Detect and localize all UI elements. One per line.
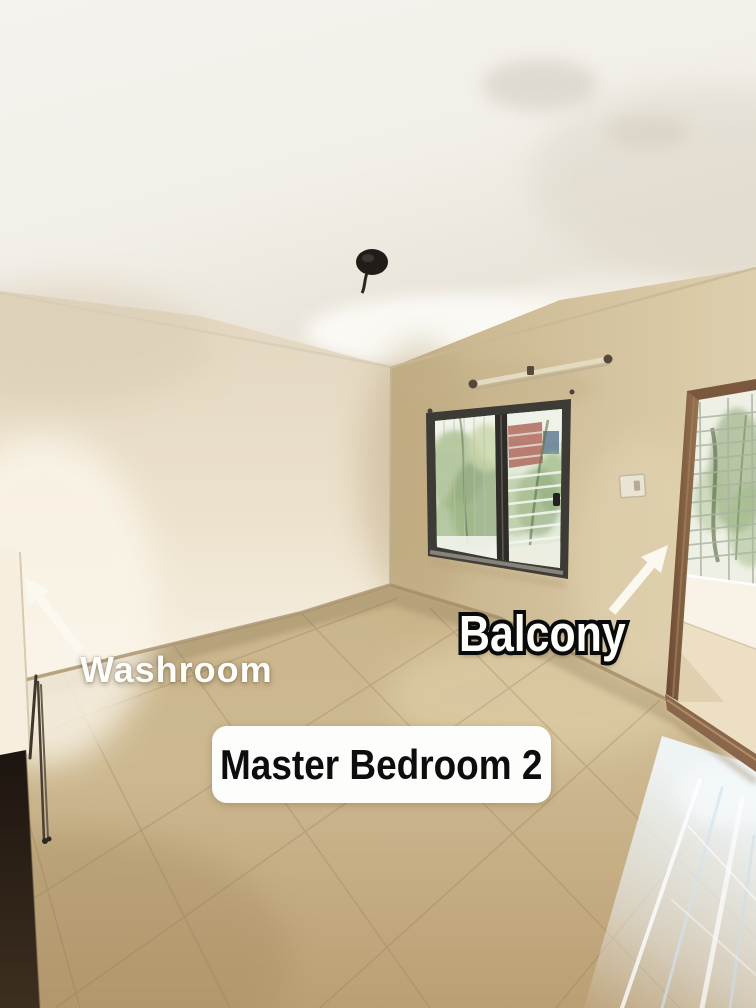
room-name-tag: Master Bedroom 2: [212, 726, 551, 803]
grille-bar: [474, 417, 475, 553]
grille-post: [728, 398, 729, 588]
grille-bar: [454, 419, 455, 549]
window-hook: [570, 390, 575, 395]
light-switch-button: [634, 480, 641, 490]
grille-bar: [464, 418, 465, 551]
grille-post: [700, 402, 701, 585]
balcony-label-fill: Balcony: [459, 607, 626, 661]
window-handle: [553, 493, 560, 506]
curtain-rod-bracket: [527, 366, 534, 375]
ceiling-smudge: [482, 59, 598, 111]
curtain-rod-endcap: [604, 355, 613, 364]
fan-mount-highlight: [362, 254, 374, 262]
washroom-label: Washroom: [80, 649, 273, 691]
curtain-rod-endcap: [469, 380, 478, 389]
grille-bar: [484, 416, 485, 555]
room-photo: [0, 0, 756, 1008]
wall-corner-edge: [390, 367, 391, 585]
light-switch: [619, 474, 645, 498]
grille-post: [752, 394, 753, 590]
rod-foot: [47, 837, 52, 842]
balcony-label: Balcony Balcony: [459, 607, 627, 667]
ceiling-smudge: [606, 114, 690, 150]
window: [426, 390, 575, 586]
room-name-tag-text: Master Bedroom 2: [220, 741, 542, 789]
light-switch-plate: [619, 474, 645, 498]
window-hook: [428, 409, 433, 414]
fan-mount-disc: [356, 249, 388, 275]
screenshot-root: Washroom Balcony Balcony Master Bedroom …: [0, 0, 756, 1008]
grille-bar: [444, 420, 445, 548]
